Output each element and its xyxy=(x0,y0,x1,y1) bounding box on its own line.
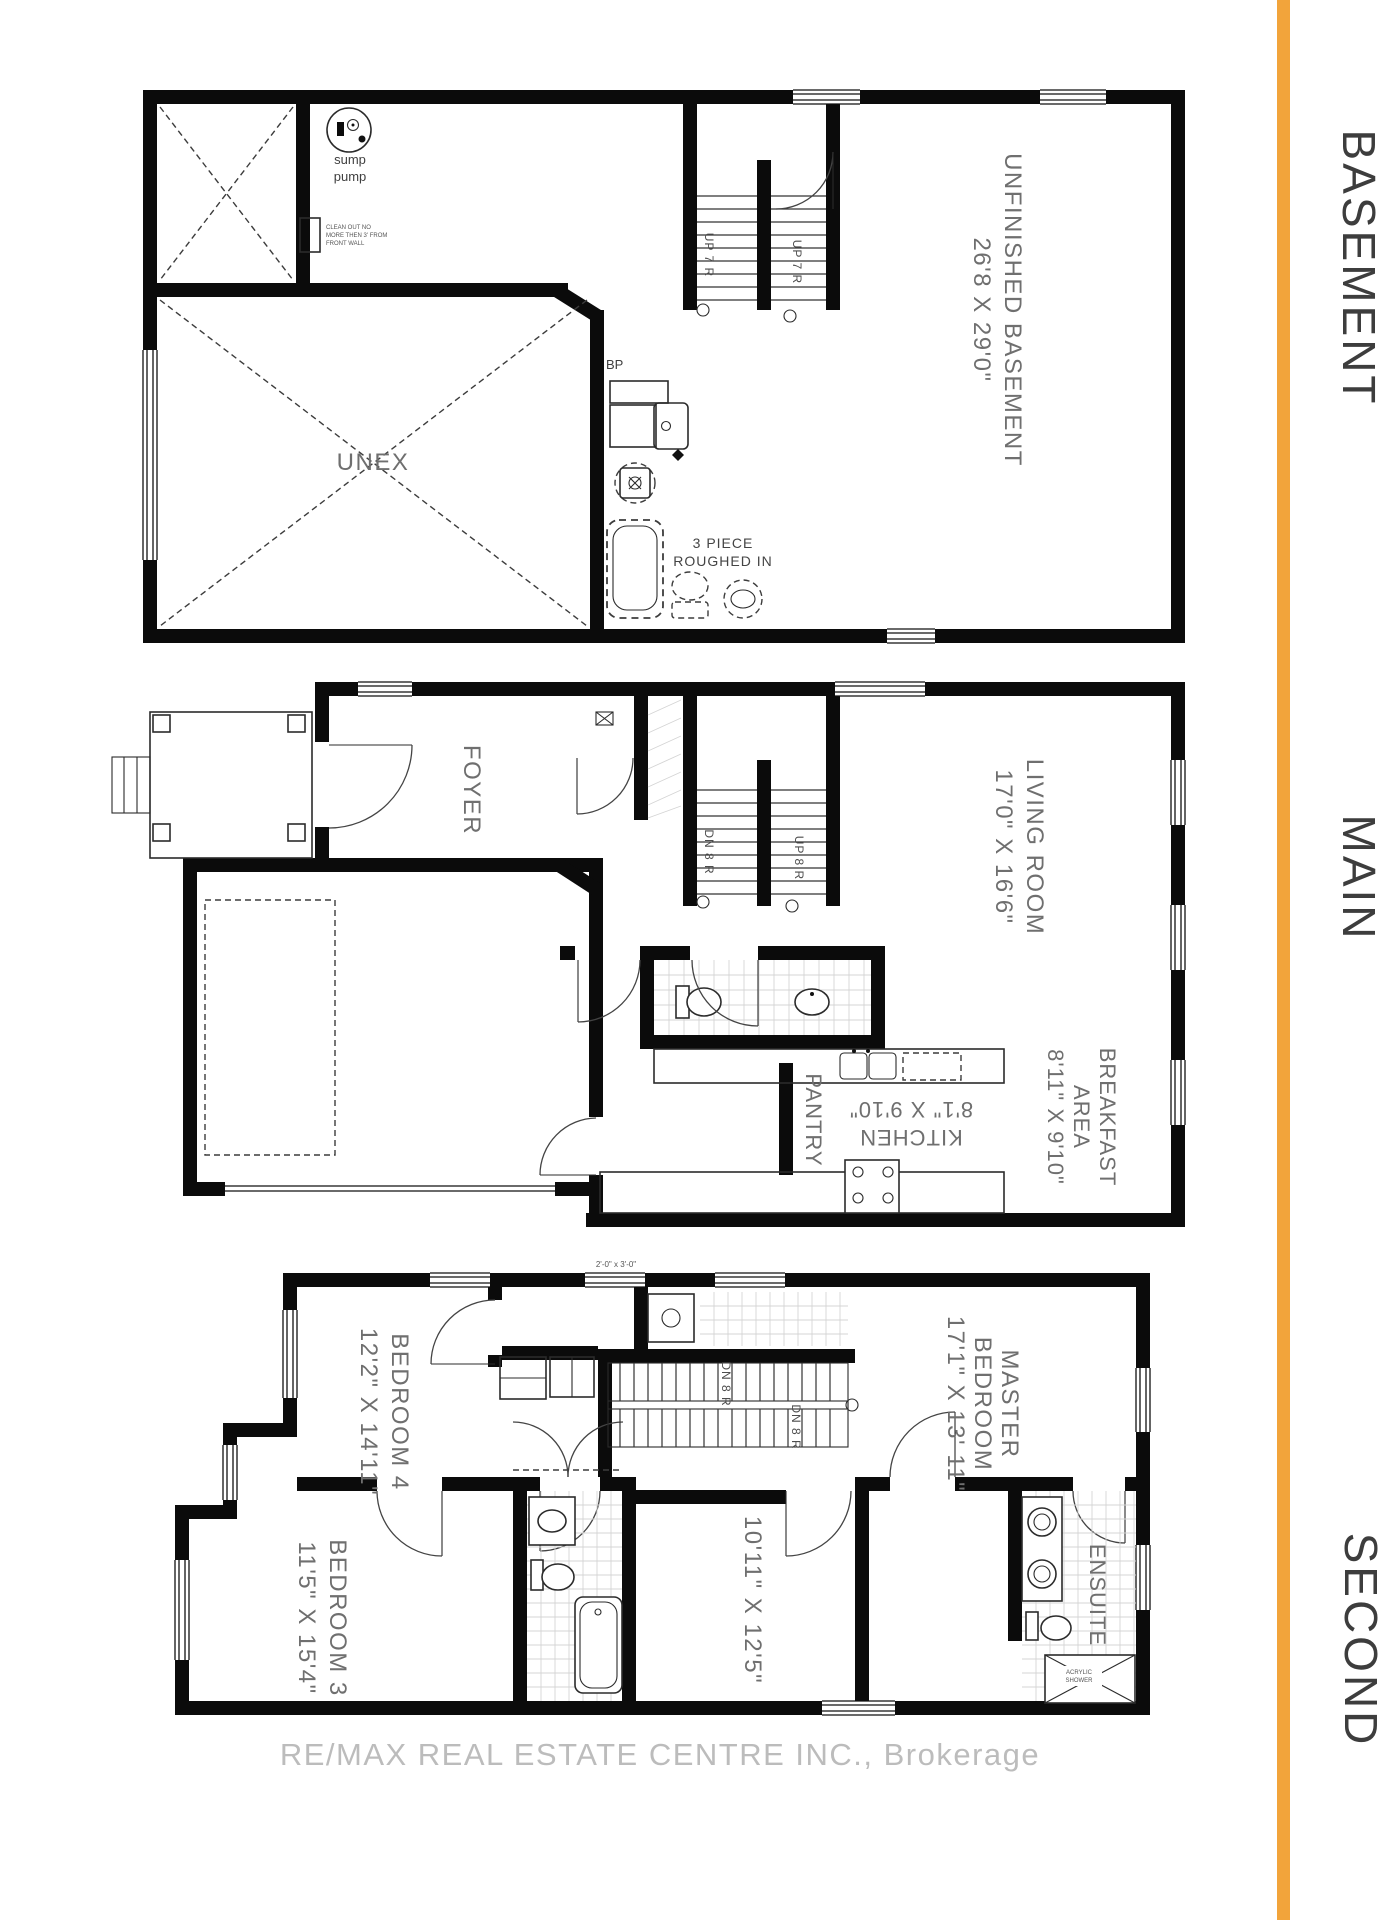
basement-stairs-label-right: UP 7 R xyxy=(790,240,804,284)
door-arc xyxy=(578,960,640,1022)
garage-entry-door xyxy=(540,1117,603,1175)
ensuite-door xyxy=(1073,1491,1125,1543)
door-arc xyxy=(776,152,833,209)
second-stairs-label-right: DN 8 R xyxy=(789,1404,803,1449)
tub-roughin-icon xyxy=(607,520,663,618)
door-arc xyxy=(786,1491,851,1556)
basement-plan: UP 7 R UP 7 R sump pump CLEAN OUT NO MOR… xyxy=(143,90,1185,643)
breakfast-line1: BREAKFAST xyxy=(1095,1048,1120,1187)
hall-closet xyxy=(577,700,681,818)
pantry-label: PANTRY xyxy=(801,1073,826,1166)
sump-pump-icon xyxy=(327,108,371,152)
basement-room-name: UNFINISHED BASEMENT xyxy=(999,153,1026,467)
second-walls xyxy=(175,1273,1150,1715)
kitchen-label: KITCHEN 8'1" X 9'10" xyxy=(849,1097,973,1150)
sink-roughin-icon xyxy=(724,580,762,618)
master-name-line2: BEDROOM xyxy=(969,1337,996,1472)
shower-note-line1: ACRYLIC xyxy=(1066,1670,1093,1676)
bp-label: BP xyxy=(606,357,623,372)
bedroom2-door xyxy=(786,1491,851,1556)
dishwasher-outline xyxy=(903,1053,961,1080)
basement-walls xyxy=(143,90,1185,643)
floor-label-basement: BASEMENT xyxy=(1333,129,1385,406)
door-arc xyxy=(431,1300,495,1364)
rough-in-label-line2: ROUGHED IN xyxy=(673,553,772,569)
bedroom3-dims: 11'5" X 15'4" xyxy=(293,1541,320,1694)
main-stairs-label-down: DN 8 R xyxy=(702,829,716,874)
vanity-sink-icon xyxy=(529,1497,575,1545)
main-bathroom xyxy=(527,1491,622,1701)
master-dims: 17'1" X 13' 11" xyxy=(942,1316,969,1492)
stove-icon xyxy=(845,1160,899,1213)
cleanout-note-line3: FRONT WALL xyxy=(326,241,365,247)
breakfast-dims: 8'11" X 9'10" xyxy=(1043,1049,1068,1185)
sink-icon xyxy=(795,989,829,1015)
second-floor-plan: 2'-0" x 3'-0" D xyxy=(175,1260,1150,1715)
bedroom3-door xyxy=(377,1491,442,1556)
kitchen-dims: 8'1" X 9'10" xyxy=(849,1097,973,1122)
bedroom4-dims: 12'2" X 14'11" xyxy=(355,1328,382,1496)
laundry-room xyxy=(648,1292,848,1346)
master-bedroom-label: MASTER BEDROOM 17'1" X 13' 11" xyxy=(942,1316,1023,1492)
toilet-icon xyxy=(531,1560,574,1590)
smoke-detector-icon xyxy=(596,712,613,725)
bedroom4-door xyxy=(431,1300,502,1364)
washer-icon xyxy=(648,1294,694,1342)
door-arc xyxy=(577,758,633,814)
accent-line xyxy=(1277,0,1290,1920)
double-sink-vanity-icon xyxy=(1022,1497,1062,1601)
foyer-label: FOYER xyxy=(458,745,485,835)
main-stairs-label-up: UP 8 R xyxy=(792,836,806,880)
cleanout-note-line1: CLEAN OUT NO xyxy=(326,225,371,231)
floor-label-second: SECOND xyxy=(1335,1533,1387,1748)
cleanout-note-line2: MORE THEN 3' FROM xyxy=(326,233,387,239)
floor-drain-icon xyxy=(672,449,684,461)
side-band: BASEMENT MAIN SECOND xyxy=(1277,0,1387,1920)
floor-label-main: MAIN xyxy=(1333,815,1385,942)
kitchen-name: KITCHEN xyxy=(859,1125,963,1150)
sump-pump-label-line1: sump xyxy=(334,152,366,167)
bedroom4-label: BEDROOM 4 12'2" X 14'11" xyxy=(355,1328,413,1496)
main-floor-plan: DN 8 R UP 8 R xyxy=(112,682,1185,1227)
door-arc xyxy=(1073,1491,1125,1543)
front-door xyxy=(315,742,412,828)
bedroom3-label: BEDROOM 3 11'5" X 15'4" xyxy=(293,1539,351,1697)
water-heater-icon xyxy=(610,381,688,449)
window-dim-note: 2'-0" x 3'-0" xyxy=(596,1260,636,1269)
living-room-label: LIVING ROOM 17'0" X 16'6" xyxy=(990,759,1048,936)
watermark-text: RE/MAX REAL ESTATE CENTRE INC., Brokerag… xyxy=(280,1737,1040,1772)
breakfast-area-label: BREAKFAST AREA 8'11" X 9'10" xyxy=(1043,1048,1120,1187)
shower-note-line2: SHOWER xyxy=(1066,1678,1094,1684)
toilet-roughin-icon xyxy=(672,572,708,618)
basement-room-dims: 26'8 X 29'0" xyxy=(968,237,995,382)
sump-pump-label-line2: pump xyxy=(334,169,367,184)
living-room-name: LIVING ROOM xyxy=(1021,759,1048,936)
second-stairs-label-left: DN 8 R xyxy=(719,1361,733,1406)
bedroom3-name: BEDROOM 3 xyxy=(324,1539,351,1697)
toilet-icon xyxy=(676,986,721,1018)
living-room-dims: 17'0" X 16'6" xyxy=(990,769,1017,924)
ensuite-label: ENSUITE xyxy=(1085,1544,1110,1646)
bedroom4-name: BEDROOM 4 xyxy=(386,1333,413,1491)
rough-in-label-line1: 3 PIECE xyxy=(693,535,754,551)
watermark: RE/MAX REAL ESTATE CENTRE INC., Brokerag… xyxy=(280,1732,1040,1776)
unexcavated-area xyxy=(160,107,587,626)
bedroom2-dims: 10'11" X 12'5" xyxy=(739,1516,766,1684)
master-name-line1: MASTER xyxy=(996,1349,1023,1458)
porch xyxy=(112,712,312,858)
closet-dressers xyxy=(500,1357,594,1399)
unex-label: UNEX xyxy=(337,449,410,476)
basement-room-label: UNFINISHED BASEMENT 26'8 X 29'0" xyxy=(968,153,1026,467)
powder-room xyxy=(578,960,871,1035)
shower-icon: ACRYLIC SHOWER xyxy=(1045,1655,1135,1703)
door-arc xyxy=(377,1491,442,1556)
ensuite-bathroom: ACRYLIC SHOWER xyxy=(1022,1491,1136,1703)
floorplan-image: UP 7 R UP 7 R sump pump CLEAN OUT NO MOR… xyxy=(0,0,1396,1920)
garage-door xyxy=(225,1182,555,1196)
basement-windows xyxy=(143,90,1106,643)
second-stairs: DN 8 R DN 8 R xyxy=(608,1361,858,1449)
basement-stairs-label-left: UP 7 R xyxy=(702,233,716,277)
garage-parking-outline xyxy=(205,900,335,1155)
breakfast-line2: AREA xyxy=(1069,1085,1094,1149)
furnace-icon xyxy=(615,463,655,503)
floorplan-page: UP 7 R UP 7 R sump pump CLEAN OUT NO MOR… xyxy=(0,0,1396,1920)
bathtub-icon xyxy=(575,1597,622,1693)
porch-steps xyxy=(112,757,150,813)
kitchen-sink-icon xyxy=(840,1049,896,1079)
